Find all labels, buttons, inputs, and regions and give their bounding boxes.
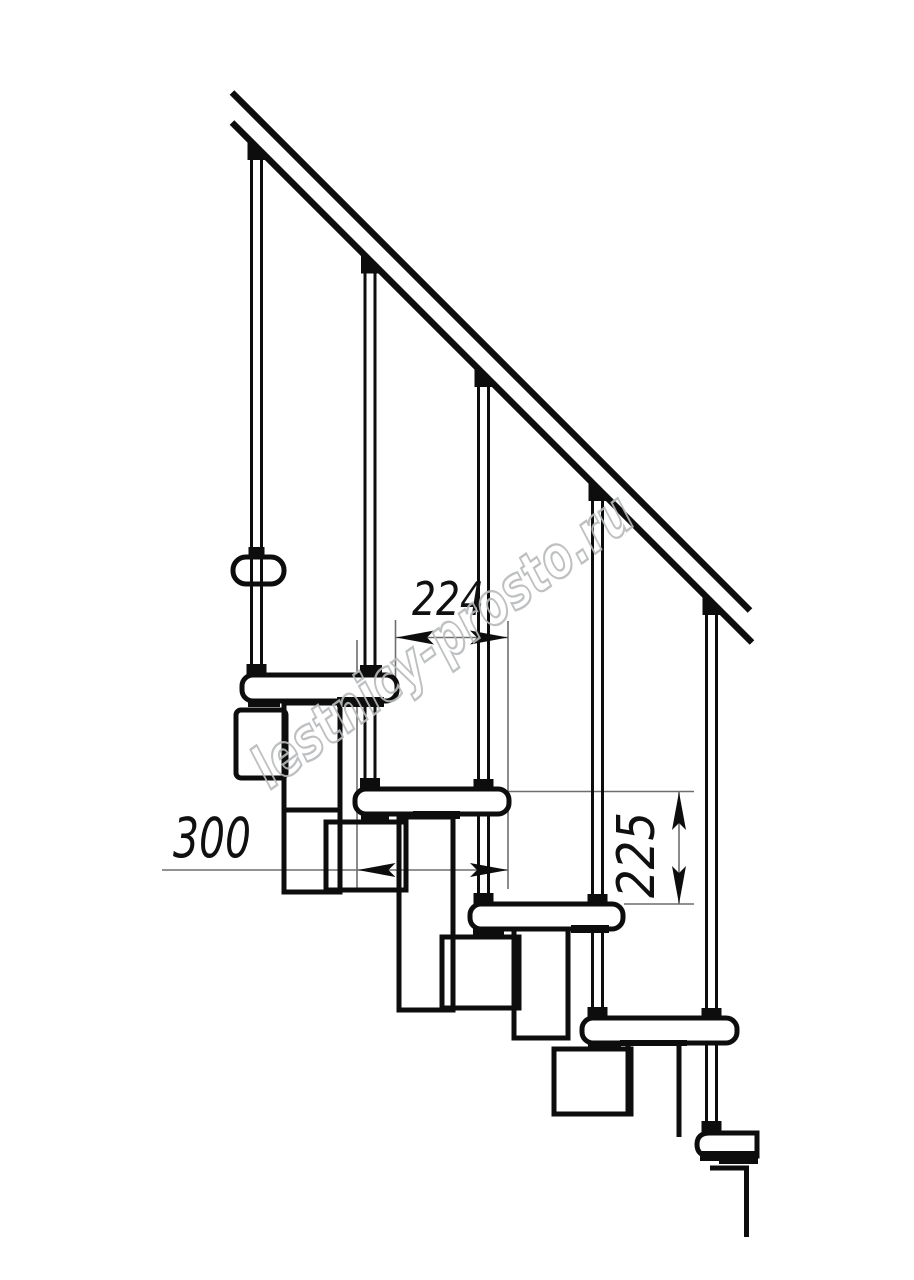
tread-3-bracket-left (473, 927, 504, 935)
baluster-4-foot (588, 1007, 608, 1020)
tread-2-bracket-right (413, 811, 460, 819)
baluster-3-clamp-on-tread2 (474, 779, 494, 790)
baluster-1-foot (247, 664, 267, 676)
module-under-tread5-outline (710, 1168, 747, 1237)
staircase-technical-drawing: 224 300 225 lestnicy-prosto.ru (0, 0, 914, 1280)
baluster-5-clamp-on-tread4 (702, 1008, 722, 1019)
handrail (232, 93, 752, 643)
tread-5-bracket-right (719, 1151, 758, 1164)
tread-2 (355, 789, 509, 814)
baluster-1 (248, 138, 266, 677)
baluster-4-clamp-on-tread3 (588, 894, 608, 905)
baluster-5 (703, 593, 721, 1134)
tread-2-bracket-left (361, 812, 389, 821)
handrail-top-line (232, 93, 750, 611)
tread-4-bracket-left (588, 1041, 621, 1051)
module-neck-tread3-to-tread4 (514, 928, 568, 1038)
dimension-225: 225 (607, 792, 686, 904)
tread-4 (582, 1018, 737, 1043)
baluster-3-foot (474, 893, 494, 906)
tread-3-bracket-right (571, 925, 609, 933)
tread-5-bracket-left (700, 1151, 719, 1161)
staircase-drawing-canvas: 224 300 225 lestnicy-prosto.ru (0, 0, 914, 1280)
baluster-5-foot (702, 1121, 722, 1134)
watermark-text: lestnicy-prosto.ru (238, 479, 646, 801)
baluster-1-capsule-clamp (249, 547, 265, 557)
baluster-2-foot (360, 778, 380, 791)
module-box-under-tread4 (554, 1049, 631, 1114)
tread-4-bracket-right (620, 1040, 687, 1046)
tread-1-bracket-left (248, 699, 280, 707)
dimension-300-label: 300 (173, 806, 251, 870)
support-modules (284, 703, 747, 1237)
dimension-225-label: 225 (607, 812, 667, 898)
upper-tread-end-view (233, 557, 284, 584)
